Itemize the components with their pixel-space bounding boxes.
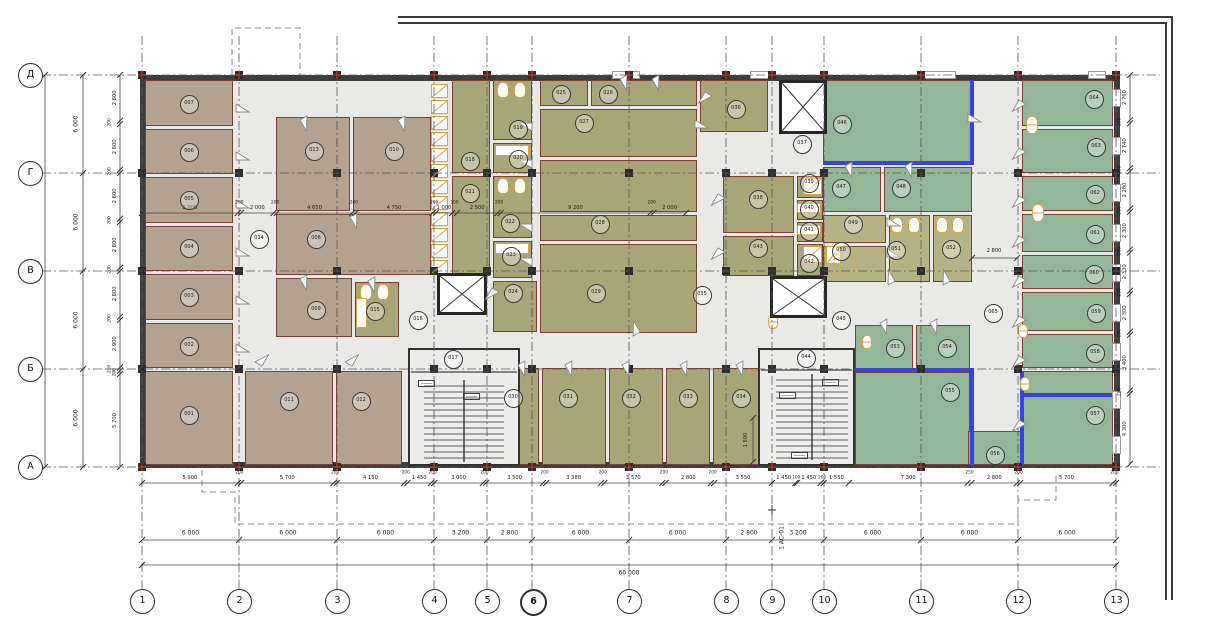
room-number-063: 063 (1087, 138, 1106, 157)
room-number-037: 037 (793, 135, 812, 154)
column (430, 71, 438, 79)
room-number-025: 025 (552, 85, 571, 104)
dim-label: 3 380 (566, 475, 581, 481)
room-number-015: 015 (366, 302, 385, 321)
window-opening (1112, 224, 1121, 242)
room-number-034: 034 (732, 389, 751, 408)
dim-label: 6 000 (73, 115, 80, 132)
column (138, 267, 146, 275)
dim-label: 1 450 (776, 475, 791, 481)
fire-boundary-line-2 (855, 368, 972, 372)
dim-label: 200 (350, 201, 358, 206)
radiator-icon (1026, 116, 1038, 134)
room-number-062: 062 (1086, 185, 1105, 204)
dim-label: 3 500 (507, 475, 522, 481)
room-number-042: 042 (800, 254, 819, 273)
room-029 (540, 244, 697, 333)
room-013 (276, 117, 350, 211)
stair-level-tag (418, 380, 435, 387)
column (333, 365, 341, 373)
room-number-052: 052 (942, 240, 961, 259)
axis-bubble-7: 7 (617, 589, 642, 614)
room-number-013: 013 (305, 142, 324, 161)
dim-label: 200 (402, 471, 410, 476)
column (235, 71, 243, 79)
room-number-053: 053 (886, 339, 905, 358)
toilet-icon (514, 82, 526, 98)
dim-label: 2 800 (112, 188, 118, 203)
column (625, 71, 633, 79)
column (1014, 169, 1022, 177)
room-number-017: 017 (444, 350, 463, 369)
dim-label: 2 300 (1122, 223, 1128, 238)
dim-label: 200 (271, 201, 279, 206)
room-number-003: 003 (180, 288, 199, 307)
dim-label: 4 750 (387, 205, 402, 211)
dim-label: 2 500 (470, 205, 485, 211)
fire-boundary-line-0 (823, 161, 973, 165)
column (138, 71, 146, 79)
dim-label: 2 330 (1122, 264, 1128, 279)
dim-total-label: 60 000 (619, 570, 640, 577)
radiator-icon (1018, 324, 1028, 338)
floor-plan-canvas: 5 9002005 7002004 1502001 4502003 000200… (0, 0, 1220, 624)
dim-label: 3 200 (452, 530, 469, 537)
room-number-064: 064 (1085, 90, 1104, 109)
dim-label: 2 740 (1122, 138, 1128, 153)
room-number-027: 027 (575, 114, 594, 133)
dim-label: 3 550 (736, 475, 751, 481)
window-opening (1112, 304, 1121, 322)
elevator-shaft-2 (437, 273, 487, 315)
room-number-026: 026 (599, 85, 618, 104)
column (528, 267, 536, 275)
room-number-005: 005 (180, 191, 199, 210)
room-number-051: 051 (887, 241, 906, 260)
room-number-057: 057 (1086, 406, 1105, 425)
column (1112, 365, 1120, 373)
dim-label: 2 000 (250, 205, 265, 211)
toilet-icon (936, 217, 948, 233)
toilet-icon (497, 82, 509, 98)
room-number-040: 040 (800, 200, 819, 219)
dim-label: 1 550 (829, 475, 844, 481)
room-010 (353, 117, 431, 211)
room-033 (666, 368, 710, 465)
column (333, 71, 341, 79)
dim-label: 200 (648, 201, 656, 206)
dim-label: 2 900 (112, 336, 118, 351)
stair-level-tag (779, 392, 796, 399)
column (430, 267, 438, 275)
axis-bubble-А: А (18, 455, 43, 480)
room-number-009: 009 (307, 301, 326, 320)
dim-label: 200 (1118, 288, 1123, 296)
column (917, 267, 925, 275)
column (483, 169, 491, 177)
room-number-036: 036 (727, 100, 746, 119)
dim-label: 200 (495, 201, 503, 206)
room-number-006: 006 (180, 143, 199, 162)
column (483, 71, 491, 79)
axis-bubble-12: 12 (1006, 589, 1031, 614)
column (820, 267, 828, 275)
dim-label: 6 000 (864, 530, 881, 537)
dim-label: 5 700 (112, 413, 118, 428)
room-number-050: 050 (832, 242, 851, 261)
radiator-icon (862, 335, 872, 349)
locker-icon (431, 100, 448, 114)
room-number-007: 007 (180, 95, 199, 114)
dim-label: 1 000 (437, 205, 452, 211)
room-number-021: 021 (461, 184, 480, 203)
dim-label: 2 280 (1122, 183, 1128, 198)
column (768, 71, 776, 79)
dim-label: 200 (331, 471, 339, 476)
room-number-030: 030 (504, 389, 523, 408)
column (820, 365, 828, 373)
toilet-icon (514, 178, 526, 194)
column (235, 267, 243, 275)
axis-bubble-5: 5 (475, 589, 500, 614)
axis-bubble-Б: Б (18, 357, 43, 382)
locker-icon (431, 148, 448, 162)
section-marker-label: 1 АС-01 (779, 526, 786, 550)
dim-label: 300 (450, 201, 458, 206)
fire-boundary-line-1 (970, 80, 974, 165)
room-number-038: 038 (749, 190, 768, 209)
column (430, 365, 438, 373)
room-number-035: 035 (693, 286, 712, 305)
dim-label: 1 450 (412, 475, 427, 481)
dim-label: 6 000 (73, 311, 80, 328)
locker-icon (431, 212, 448, 226)
axis-bubble-4: 4 (422, 589, 447, 614)
locker-icon (431, 116, 448, 130)
dim-label: 6 000 (1058, 530, 1075, 537)
room-number-061: 061 (1086, 225, 1105, 244)
column (1014, 365, 1022, 373)
column (333, 169, 341, 177)
axis-bubble-В: В (18, 259, 43, 284)
dim-label: 200 (108, 216, 113, 224)
room-number-048: 048 (892, 179, 911, 198)
column (138, 365, 146, 373)
dim-label: 200 (1110, 471, 1118, 476)
locker-icon (431, 132, 448, 146)
column (820, 463, 828, 471)
dim-label: 200 (660, 471, 668, 476)
dim-label: 250 (965, 471, 973, 476)
dim-label: 100 (792, 476, 800, 481)
stair-level-tag (791, 452, 808, 459)
column (625, 267, 633, 275)
room-012 (336, 371, 402, 465)
dim-label: 200 (818, 476, 826, 481)
column (1112, 267, 1120, 275)
dim-label: 2 800 (987, 475, 1002, 481)
dim-label: 3 000 (451, 475, 466, 481)
dim-label: 200 (428, 471, 436, 476)
column (722, 267, 730, 275)
room-number-022: 022 (501, 214, 520, 233)
dim-label: 200 (1118, 118, 1123, 126)
column (625, 463, 633, 471)
column (1014, 71, 1022, 79)
room-number-014: 014 (250, 230, 269, 249)
room-number-020: 020 (509, 150, 528, 169)
radiator-icon (1020, 377, 1030, 391)
dim-label: 9 200 (568, 205, 583, 211)
room-031 (542, 368, 606, 465)
axis-bubble-10: 10 (812, 589, 837, 614)
dim-label: 4 150 (363, 475, 378, 481)
room-number-054: 054 (938, 339, 957, 358)
room-032 (609, 368, 663, 465)
axis-bubble-13: 13 (1104, 589, 1129, 614)
locker-icon (431, 180, 448, 194)
dim-label: 2 760 (1122, 90, 1128, 105)
dim-label: 6 000 (182, 530, 199, 537)
dim-label: 5 700 (1059, 475, 1074, 481)
column (917, 365, 925, 373)
dim-label: 200 (113, 368, 118, 376)
window-opening (750, 71, 770, 79)
column (333, 267, 341, 275)
dim-label: 200 (540, 471, 548, 476)
room-number-032: 032 (622, 389, 641, 408)
fire-boundary-line-5 (1020, 393, 1115, 397)
window-opening (1112, 137, 1121, 155)
dim-label: 1 450 (801, 475, 816, 481)
dim-label: 3 570 (626, 475, 641, 481)
column (722, 71, 730, 79)
toilet-icon (377, 284, 389, 300)
dim-label: 6 000 (73, 409, 80, 426)
room-number-024: 024 (504, 284, 523, 303)
column (1014, 267, 1022, 275)
axis-bubble-Д: Д (18, 63, 43, 88)
dim-label: 5 900 (182, 475, 197, 481)
axis-bubble-2: 2 (227, 589, 252, 614)
room-008 (276, 214, 431, 275)
elevator-shaft-1 (770, 276, 827, 318)
dim-label: 200 (108, 118, 113, 126)
dim-label: 2 800 (501, 530, 518, 537)
dim-label: 2 800 (681, 475, 696, 481)
dim-label: 5 700 (280, 475, 295, 481)
dim-label: 2 300 (1122, 305, 1128, 320)
dim-label: 3 200 (789, 530, 806, 537)
column (528, 463, 536, 471)
room-number-029: 029 (587, 284, 606, 303)
axis-bubble-1: 1 (130, 589, 155, 614)
column (820, 169, 828, 177)
dim-label: 200 (235, 471, 243, 476)
dim-label: 3 400 (1122, 355, 1128, 370)
room-number-045: 045 (832, 311, 851, 330)
dim-label: 6 000 (961, 530, 978, 537)
room-number-044: 044 (797, 349, 816, 368)
room-028 (540, 215, 697, 241)
room-number-008: 008 (307, 230, 326, 249)
room-number-043: 043 (749, 239, 768, 258)
axis-bubble-9: 9 (760, 589, 785, 614)
column (768, 267, 776, 275)
window-opening (922, 71, 956, 79)
dim-label: 4 300 (1122, 421, 1128, 436)
room-number-001: 001 (180, 406, 199, 425)
room-number-058: 058 (1086, 344, 1105, 363)
toilet-icon (952, 217, 964, 233)
dim-label: 6 000 (669, 530, 686, 537)
room-number-018: 018 (461, 152, 480, 171)
dim-label: 2 800 (740, 530, 757, 537)
room-number-047: 047 (832, 179, 851, 198)
dim-label: 200 (1118, 329, 1123, 337)
room-number-023: 023 (502, 247, 521, 266)
room-027 (540, 109, 697, 157)
column (1112, 71, 1120, 79)
fire-boundary-line-3 (970, 368, 974, 466)
column (235, 169, 243, 177)
room-number-046: 046 (833, 115, 852, 134)
dim-label: 2 800 (112, 286, 118, 301)
dim-label: 2 800 (112, 139, 118, 154)
dim-label: 2 800 (112, 237, 118, 252)
column (483, 267, 491, 275)
dim-label: 200 (1118, 206, 1123, 214)
room-number-039: 039 (800, 174, 819, 193)
room-number-004: 004 (180, 239, 199, 258)
column (768, 169, 776, 177)
dim-label: 7 300 (901, 475, 916, 481)
room-number-031: 031 (559, 389, 578, 408)
room-number-012: 012 (352, 392, 371, 411)
column (528, 169, 536, 177)
axis-bubble-6: 6 (520, 589, 547, 616)
axis-bubble-11: 11 (909, 589, 934, 614)
window-opening (1088, 71, 1106, 79)
dim-label: 200 (1118, 388, 1123, 396)
dim-label: 1 500 (743, 433, 749, 448)
room-number-033: 033 (679, 389, 698, 408)
room-number-049: 049 (844, 215, 863, 234)
column (138, 169, 146, 177)
room-number-055: 055 (941, 383, 960, 402)
window-opening (1112, 89, 1121, 107)
radiator-icon (1032, 204, 1044, 222)
dim-label: 6 000 (377, 530, 394, 537)
room-number-056: 056 (986, 446, 1005, 465)
dim-label: 2 800 (987, 248, 1002, 254)
locker-icon (431, 228, 448, 242)
column (625, 365, 633, 373)
dim-label: 4 650 (307, 205, 322, 211)
window-opening (1112, 184, 1121, 202)
room-011 (245, 371, 333, 465)
column (768, 365, 776, 373)
column (722, 365, 730, 373)
column (528, 71, 536, 79)
column (722, 169, 730, 177)
column (917, 463, 925, 471)
window-opening (1112, 436, 1121, 454)
elevator-shaft-0 (779, 80, 827, 134)
dim-label: 200 (1118, 166, 1123, 174)
dim-label: 6 000 (73, 213, 80, 230)
toilet-icon (497, 178, 509, 194)
room-number-011: 011 (280, 392, 299, 411)
column (235, 365, 243, 373)
stair-level-tag (822, 379, 839, 386)
column (138, 463, 146, 471)
axis-bubble-3: 3 (325, 589, 350, 614)
stair-enclosure-0 (408, 348, 520, 466)
dim-label: 200 (235, 201, 243, 206)
column (917, 169, 925, 177)
locker-icon (431, 244, 448, 258)
room-number-059: 059 (1087, 304, 1106, 323)
column (483, 365, 491, 373)
toilet-icon (908, 217, 920, 233)
dim-label: 200 (599, 471, 607, 476)
stair-level-tag (463, 393, 480, 400)
dim-label: 6 000 (279, 530, 296, 537)
dim-label: 200 (1014, 471, 1022, 476)
window-opening (1112, 343, 1121, 361)
dim-label: 200 (1118, 247, 1123, 255)
dim-label: 2 000 (662, 205, 677, 211)
column (430, 169, 438, 177)
dim-label: 200 (480, 471, 488, 476)
room-number-060: 060 (1085, 265, 1104, 284)
dim-label: 200 (108, 265, 113, 273)
column (820, 71, 828, 79)
room-number-010: 010 (385, 142, 404, 161)
dim-label: 200 (709, 471, 717, 476)
column (528, 365, 536, 373)
room-number-016: 016 (409, 311, 428, 330)
column (722, 463, 730, 471)
dim-label: 6 000 (572, 530, 589, 537)
room-number-065: 065 (984, 304, 1003, 323)
axis-bubble-Г: Г (18, 161, 43, 186)
column (917, 71, 925, 79)
axis-bubble-8: 8 (714, 589, 739, 614)
room-number-028: 028 (591, 215, 610, 234)
column (768, 463, 776, 471)
locker-icon (431, 84, 448, 98)
dim-label: 2 800 (112, 90, 118, 105)
toilet-icon (891, 217, 903, 233)
dim-label: 200 (108, 314, 113, 322)
room-number-019: 019 (509, 120, 528, 139)
room-number-002: 002 (180, 337, 199, 356)
column (625, 169, 633, 177)
dim-label: 200 (108, 167, 113, 175)
room-number-041: 041 (800, 222, 819, 241)
